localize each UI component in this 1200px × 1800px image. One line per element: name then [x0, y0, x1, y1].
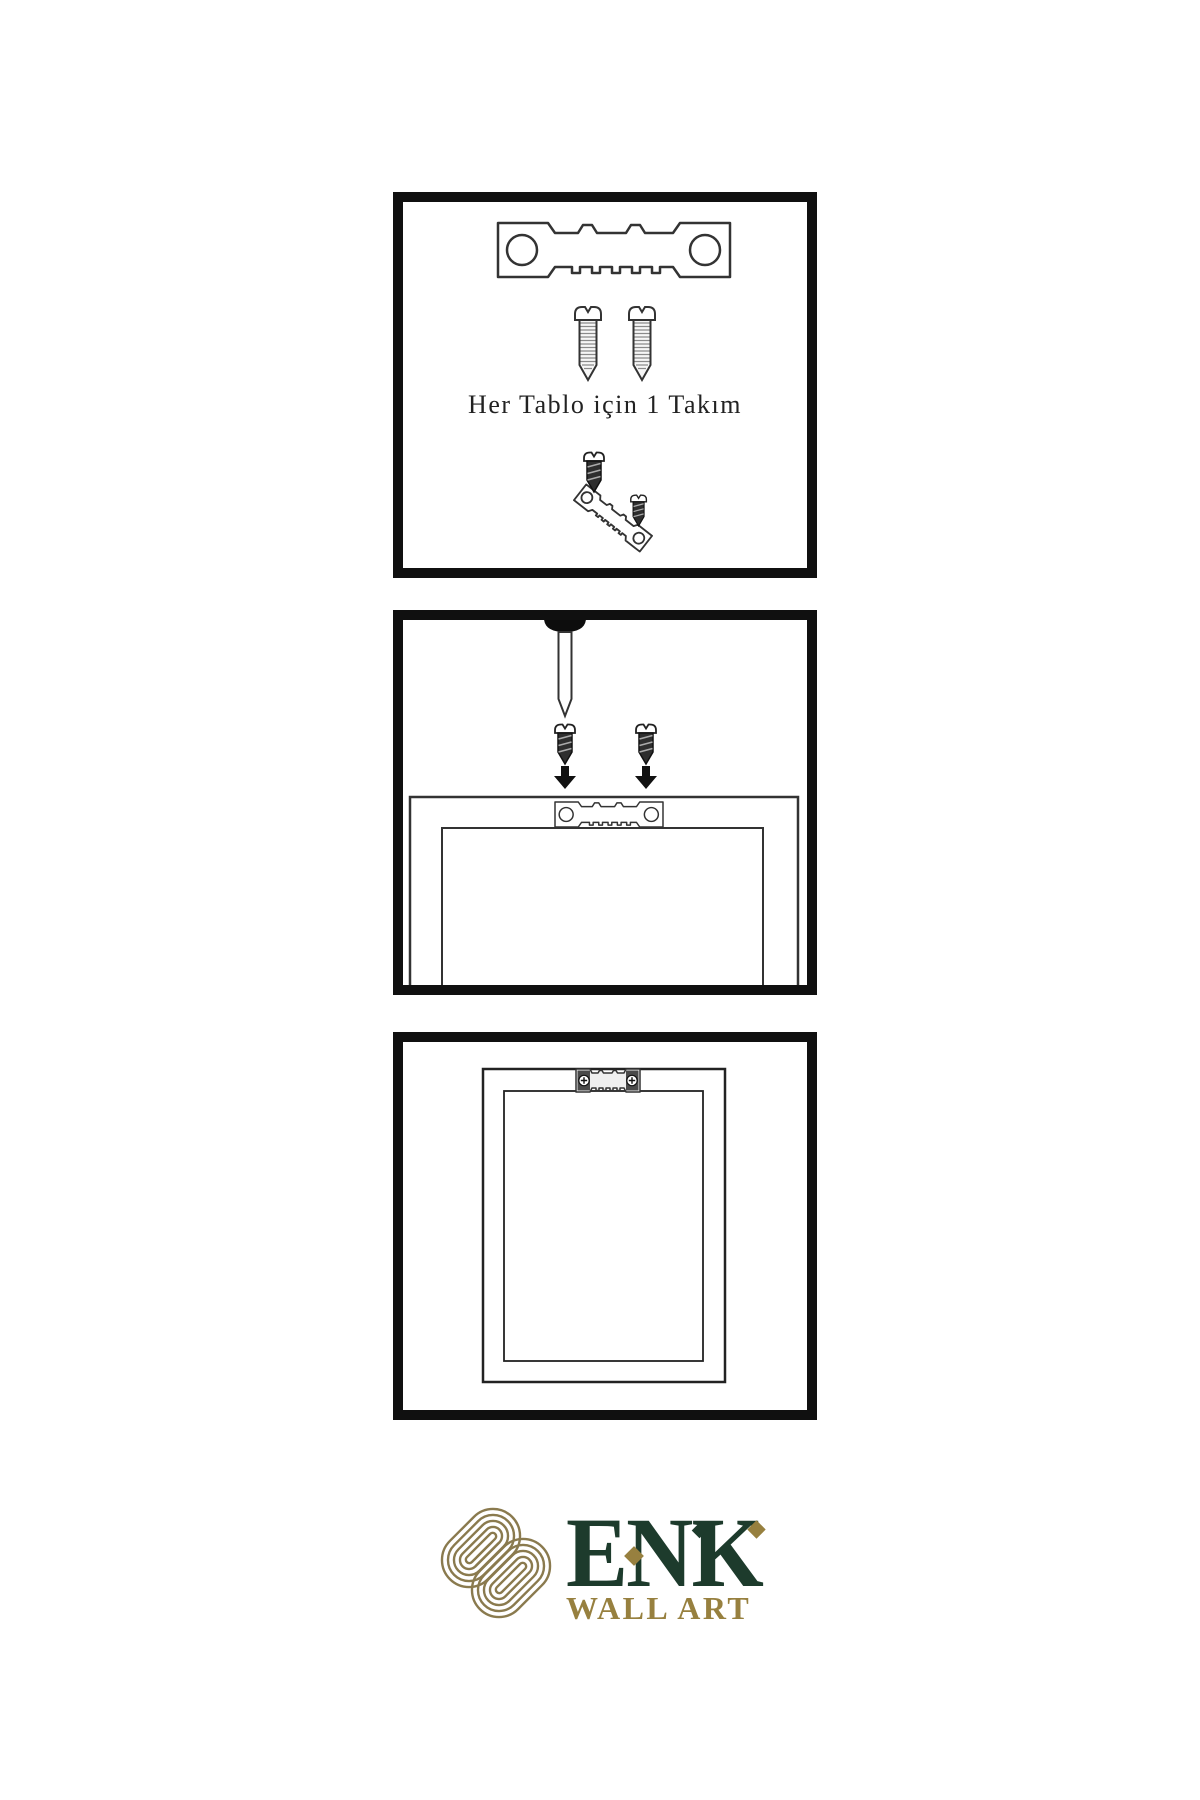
- nail-icon: [544, 620, 586, 716]
- sawtooth-hanger-icon: [498, 223, 730, 277]
- step-1-panel: Her Tablo için 1 Takım: [393, 192, 817, 578]
- arrow-down-icon: [554, 766, 657, 789]
- fastened-hanger-icon: [576, 1069, 640, 1092]
- hanger-assembly-icon: [574, 453, 652, 552]
- screw-icon: [575, 307, 655, 380]
- sawtooth-hanger-icon: [555, 802, 663, 827]
- brand-subtitle: WALL ART: [566, 1592, 751, 1624]
- set-caption: Her Tablo için 1 Takım: [403, 390, 807, 420]
- step-3-panel: [393, 1032, 817, 1420]
- step-3-drawing: [403, 1042, 807, 1410]
- instruction-sheet: Her Tablo için 1 Takım: [0, 0, 1200, 1800]
- dark-screw-icon: [555, 725, 656, 765]
- knot-logo-icon: [433, 1498, 559, 1628]
- brand-name: ENK: [566, 1503, 762, 1603]
- step-2-drawing: [403, 620, 807, 985]
- picture-frame-icon: [483, 1069, 725, 1382]
- step-1-drawing: [403, 202, 807, 568]
- picture-frame-icon: [410, 797, 798, 985]
- step-2-panel: [393, 610, 817, 995]
